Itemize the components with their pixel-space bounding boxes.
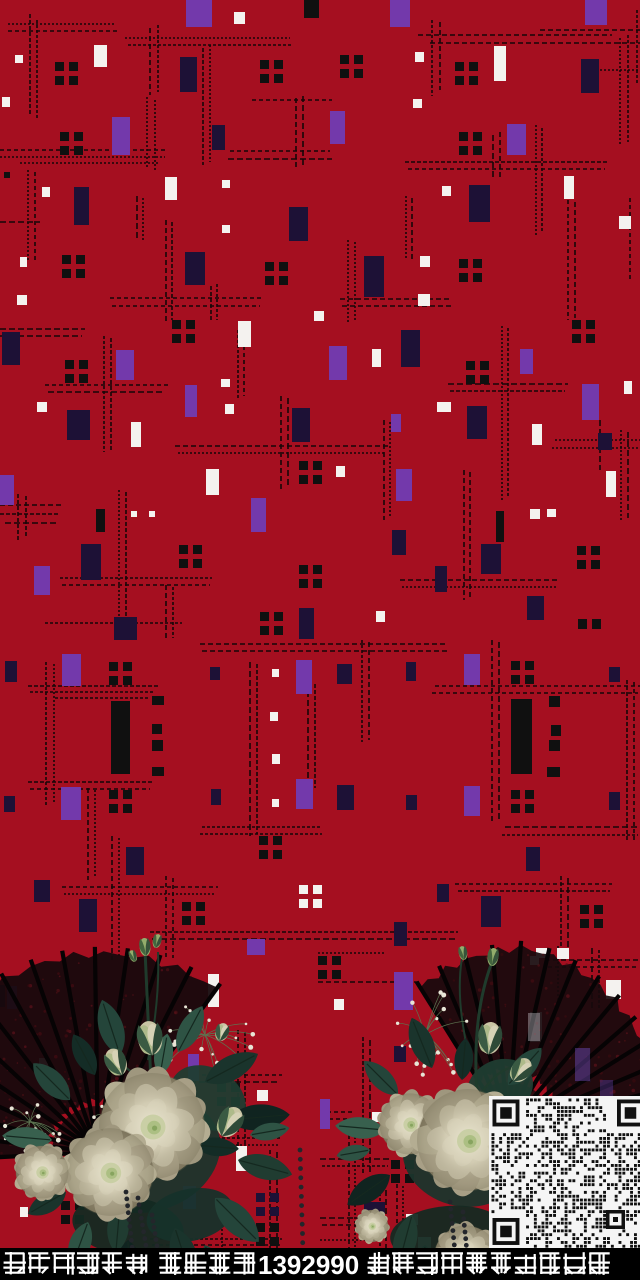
svg-text:1392990: 1392990	[258, 1250, 359, 1280]
